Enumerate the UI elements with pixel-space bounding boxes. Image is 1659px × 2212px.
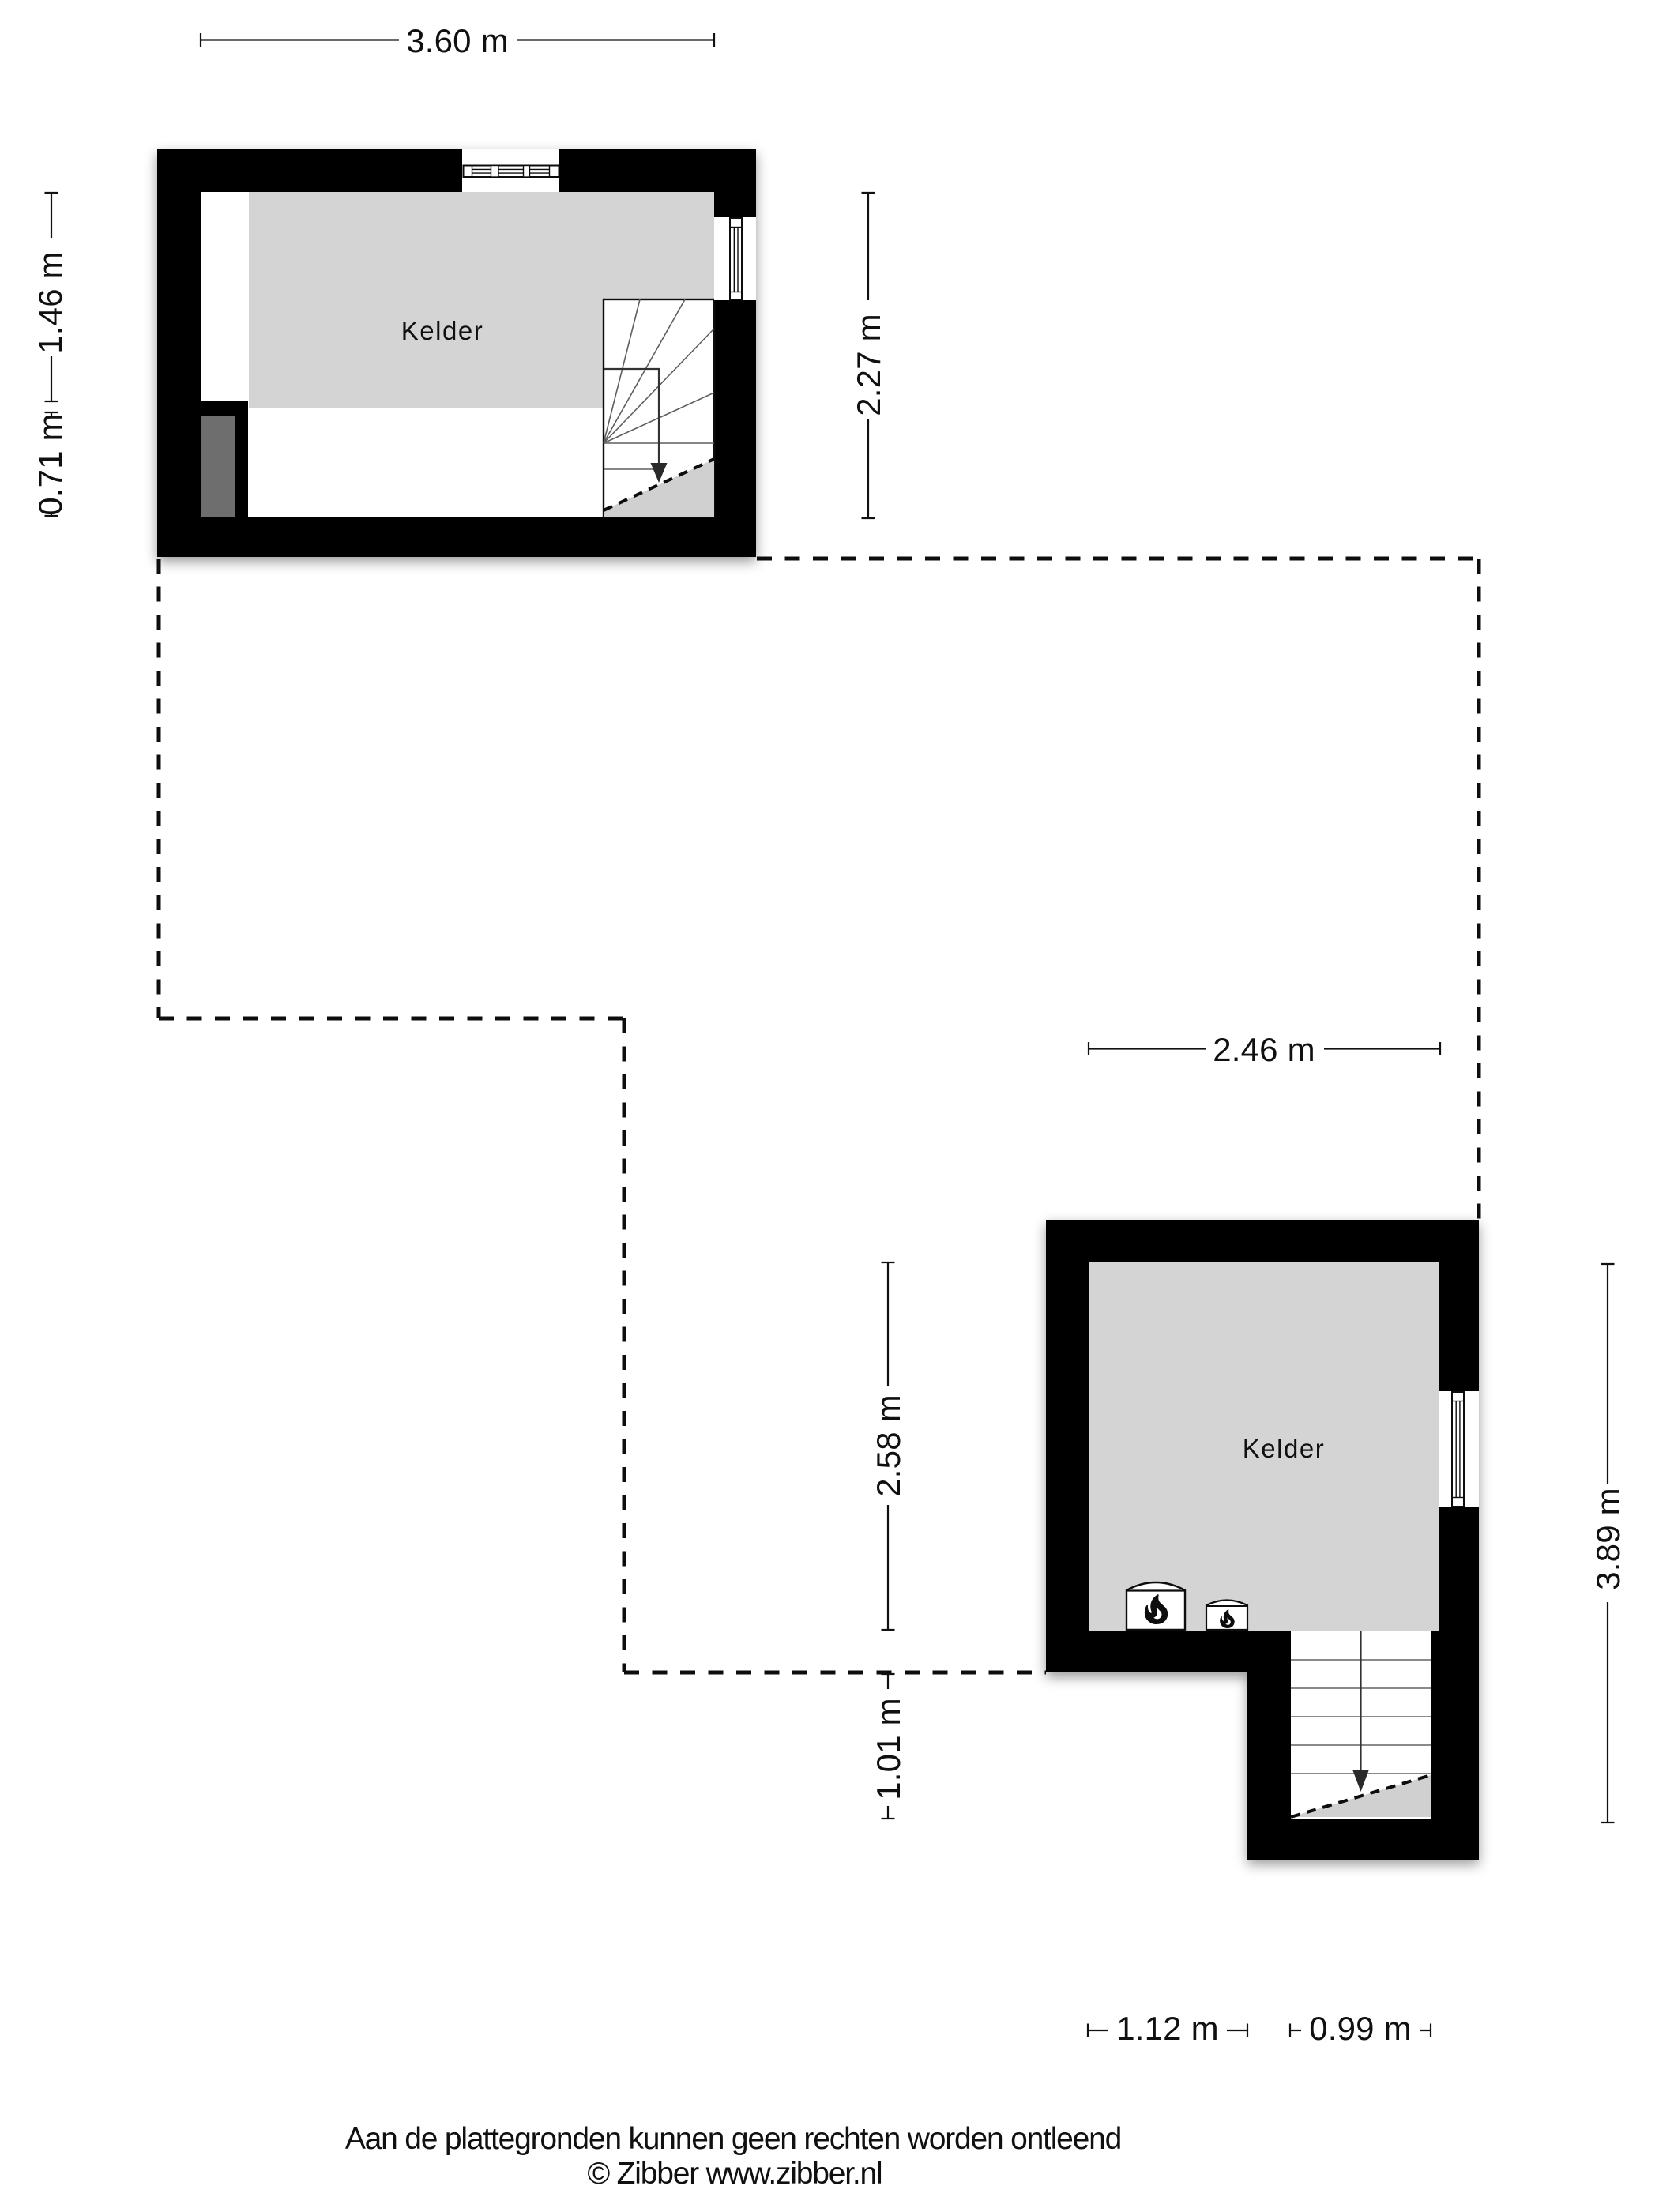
svg-text:1.46 m: 1.46 m — [32, 251, 69, 354]
svg-text:2.58 m: 2.58 m — [870, 1394, 907, 1497]
svg-text:2.46 m: 2.46 m — [1213, 1031, 1315, 1068]
svg-text:Aan de plattegronden kunnen ge: Aan de plattegronden kunnen geen rechten… — [345, 2122, 1121, 2156]
svg-text:2.27 m: 2.27 m — [850, 314, 887, 416]
svg-text:© Zibber www.zibber.nl: © Zibber www.zibber.nl — [588, 2157, 882, 2191]
svg-text:1.01 m: 1.01 m — [870, 1698, 907, 1800]
svg-text:3.60 m: 3.60 m — [406, 22, 509, 59]
svg-text:Kelder: Kelder — [1243, 1434, 1325, 1463]
svg-text:0.99 m: 0.99 m — [1309, 2010, 1412, 2047]
svg-text:3.89 m: 3.89 m — [1589, 1488, 1627, 1590]
svg-text:1.12 m: 1.12 m — [1116, 2010, 1219, 2047]
svg-text:0.71 m: 0.71 m — [32, 413, 69, 516]
svg-text:Kelder: Kelder — [401, 316, 483, 345]
